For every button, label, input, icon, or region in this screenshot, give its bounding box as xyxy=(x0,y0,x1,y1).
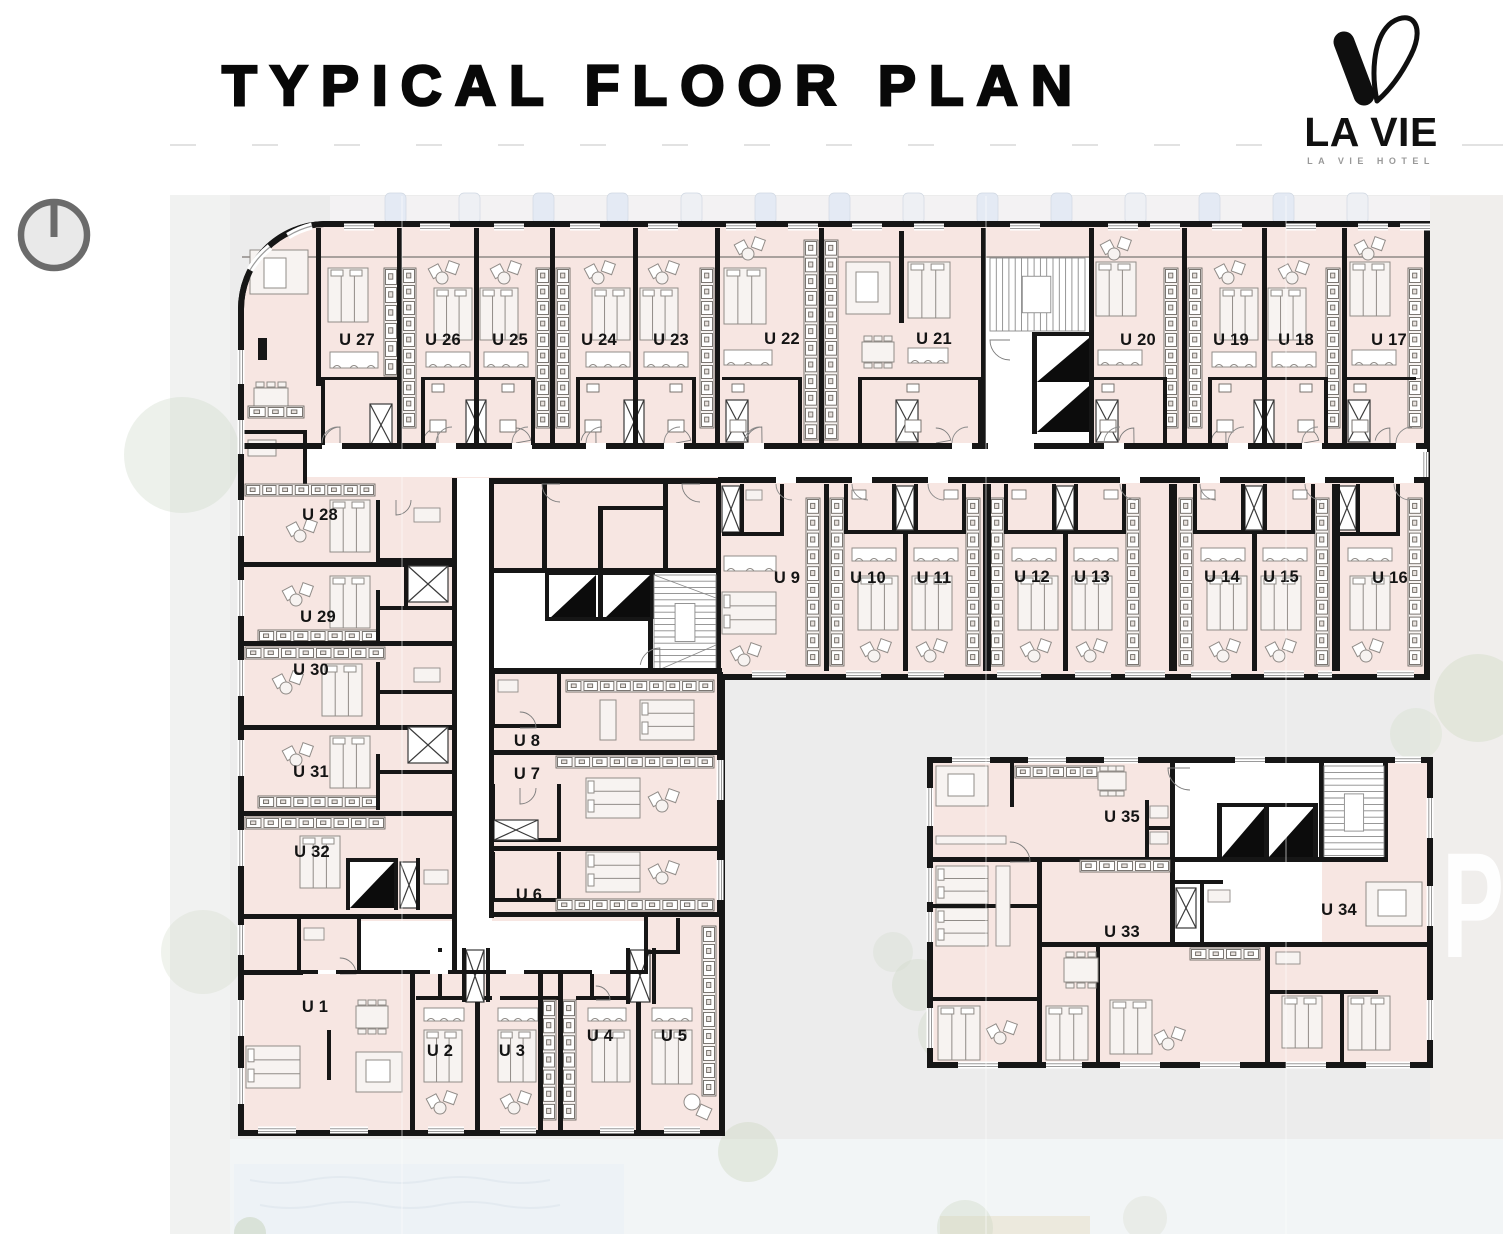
svg-text:U 34: U 34 xyxy=(1321,901,1357,919)
svg-text:U 24: U 24 xyxy=(581,331,617,349)
svg-text:U 31: U 31 xyxy=(293,763,329,781)
svg-text:LA VIE: LA VIE xyxy=(1304,109,1438,155)
svg-text:U 23: U 23 xyxy=(653,331,689,349)
svg-text:U 21: U 21 xyxy=(916,330,952,348)
svg-text:U 25: U 25 xyxy=(492,331,528,349)
svg-text:P: P xyxy=(1442,822,1503,989)
svg-text:U 16: U 16 xyxy=(1372,569,1408,587)
svg-text:U 1: U 1 xyxy=(302,998,328,1016)
svg-text:U 11: U 11 xyxy=(917,569,952,587)
svg-text:U 17: U 17 xyxy=(1371,331,1407,349)
svg-text:U 26: U 26 xyxy=(425,331,461,349)
svg-text:U 27: U 27 xyxy=(339,331,375,349)
svg-text:U 4: U 4 xyxy=(587,1027,614,1045)
svg-text:U 19: U 19 xyxy=(1213,331,1249,349)
svg-text:U 18: U 18 xyxy=(1278,331,1314,349)
svg-text:U 22: U 22 xyxy=(764,330,800,348)
svg-text:TYPICAL FLOOR PLAN: TYPICAL FLOOR PLAN xyxy=(222,54,1074,118)
svg-text:U 15: U 15 xyxy=(1263,568,1299,586)
svg-text:U 3: U 3 xyxy=(499,1042,525,1060)
svg-text:U 5: U 5 xyxy=(661,1027,687,1045)
svg-text:U 2: U 2 xyxy=(427,1042,453,1060)
svg-text:U 30: U 30 xyxy=(293,661,329,679)
svg-text:U 14: U 14 xyxy=(1204,568,1240,586)
svg-text:U 8: U 8 xyxy=(514,732,540,750)
svg-text:U 28: U 28 xyxy=(302,506,338,524)
svg-text:U 35: U 35 xyxy=(1104,808,1140,826)
svg-text:U 9: U 9 xyxy=(774,569,800,587)
svg-text:U 32: U 32 xyxy=(294,843,330,861)
svg-text:U 29: U 29 xyxy=(300,608,336,626)
svg-text:U 33: U 33 xyxy=(1104,923,1140,941)
svg-text:U 10: U 10 xyxy=(850,569,886,587)
svg-text:U 7: U 7 xyxy=(514,765,540,783)
svg-text:U 12: U 12 xyxy=(1014,568,1050,586)
svg-text:U 20: U 20 xyxy=(1120,331,1156,349)
svg-text:LA VIE HOTEL: LA VIE HOTEL xyxy=(1307,156,1435,166)
svg-text:U 13: U 13 xyxy=(1074,568,1110,586)
svg-text:U 6: U 6 xyxy=(516,886,542,904)
